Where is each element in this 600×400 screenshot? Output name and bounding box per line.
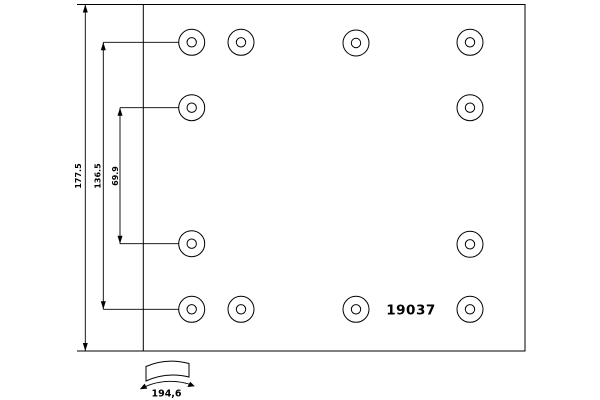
arrowhead [118, 236, 123, 244]
rivet-hole [187, 305, 196, 314]
rivet-hole [179, 296, 205, 322]
rivet-hole [457, 29, 483, 55]
rivet-hole [187, 103, 196, 112]
rivet-hole [179, 29, 205, 55]
rivet-hole [457, 231, 483, 257]
arrowhead [83, 5, 88, 13]
dimension-label-outer-span: 136.5 [94, 163, 103, 189]
rivet-hole [351, 305, 360, 314]
brake-lining-technical-drawing: 177.5 136.5 69.9 19037 194,6 [0, 0, 600, 400]
rivet-hole [465, 103, 474, 112]
part-number: 19037 [386, 303, 435, 319]
lining-profile-icon [146, 361, 189, 381]
rivet-hole [179, 231, 205, 257]
rivet-hole [465, 38, 474, 47]
brake-lining-plate [143, 5, 525, 352]
arrowhead [118, 108, 123, 116]
holes-layer [179, 29, 483, 322]
rivet-hole [228, 29, 254, 55]
rivet-hole [187, 38, 196, 47]
arc-width-label: 194,6 [151, 389, 181, 400]
rivet-hole [179, 95, 205, 121]
rivet-hole [236, 305, 245, 314]
arc-arrowhead-right [187, 382, 194, 387]
rivet-hole [343, 30, 369, 56]
arrowhead [83, 343, 88, 351]
rivet-hole [465, 240, 474, 249]
rivet-hole [228, 296, 254, 322]
rivet-hole [351, 38, 360, 47]
rivet-hole [457, 95, 483, 121]
dimension-label-overall-height: 177.5 [74, 163, 83, 189]
arc-dimension-arrow [143, 381, 192, 387]
arrowhead [101, 301, 106, 309]
rivet-hole [343, 296, 369, 322]
rivet-hole [465, 305, 474, 314]
arrowhead [101, 42, 106, 50]
rivet-hole [236, 38, 245, 47]
rivet-hole [187, 239, 196, 248]
rivet-hole [457, 296, 483, 322]
dimension-label-inner-span: 69.9 [111, 166, 120, 186]
